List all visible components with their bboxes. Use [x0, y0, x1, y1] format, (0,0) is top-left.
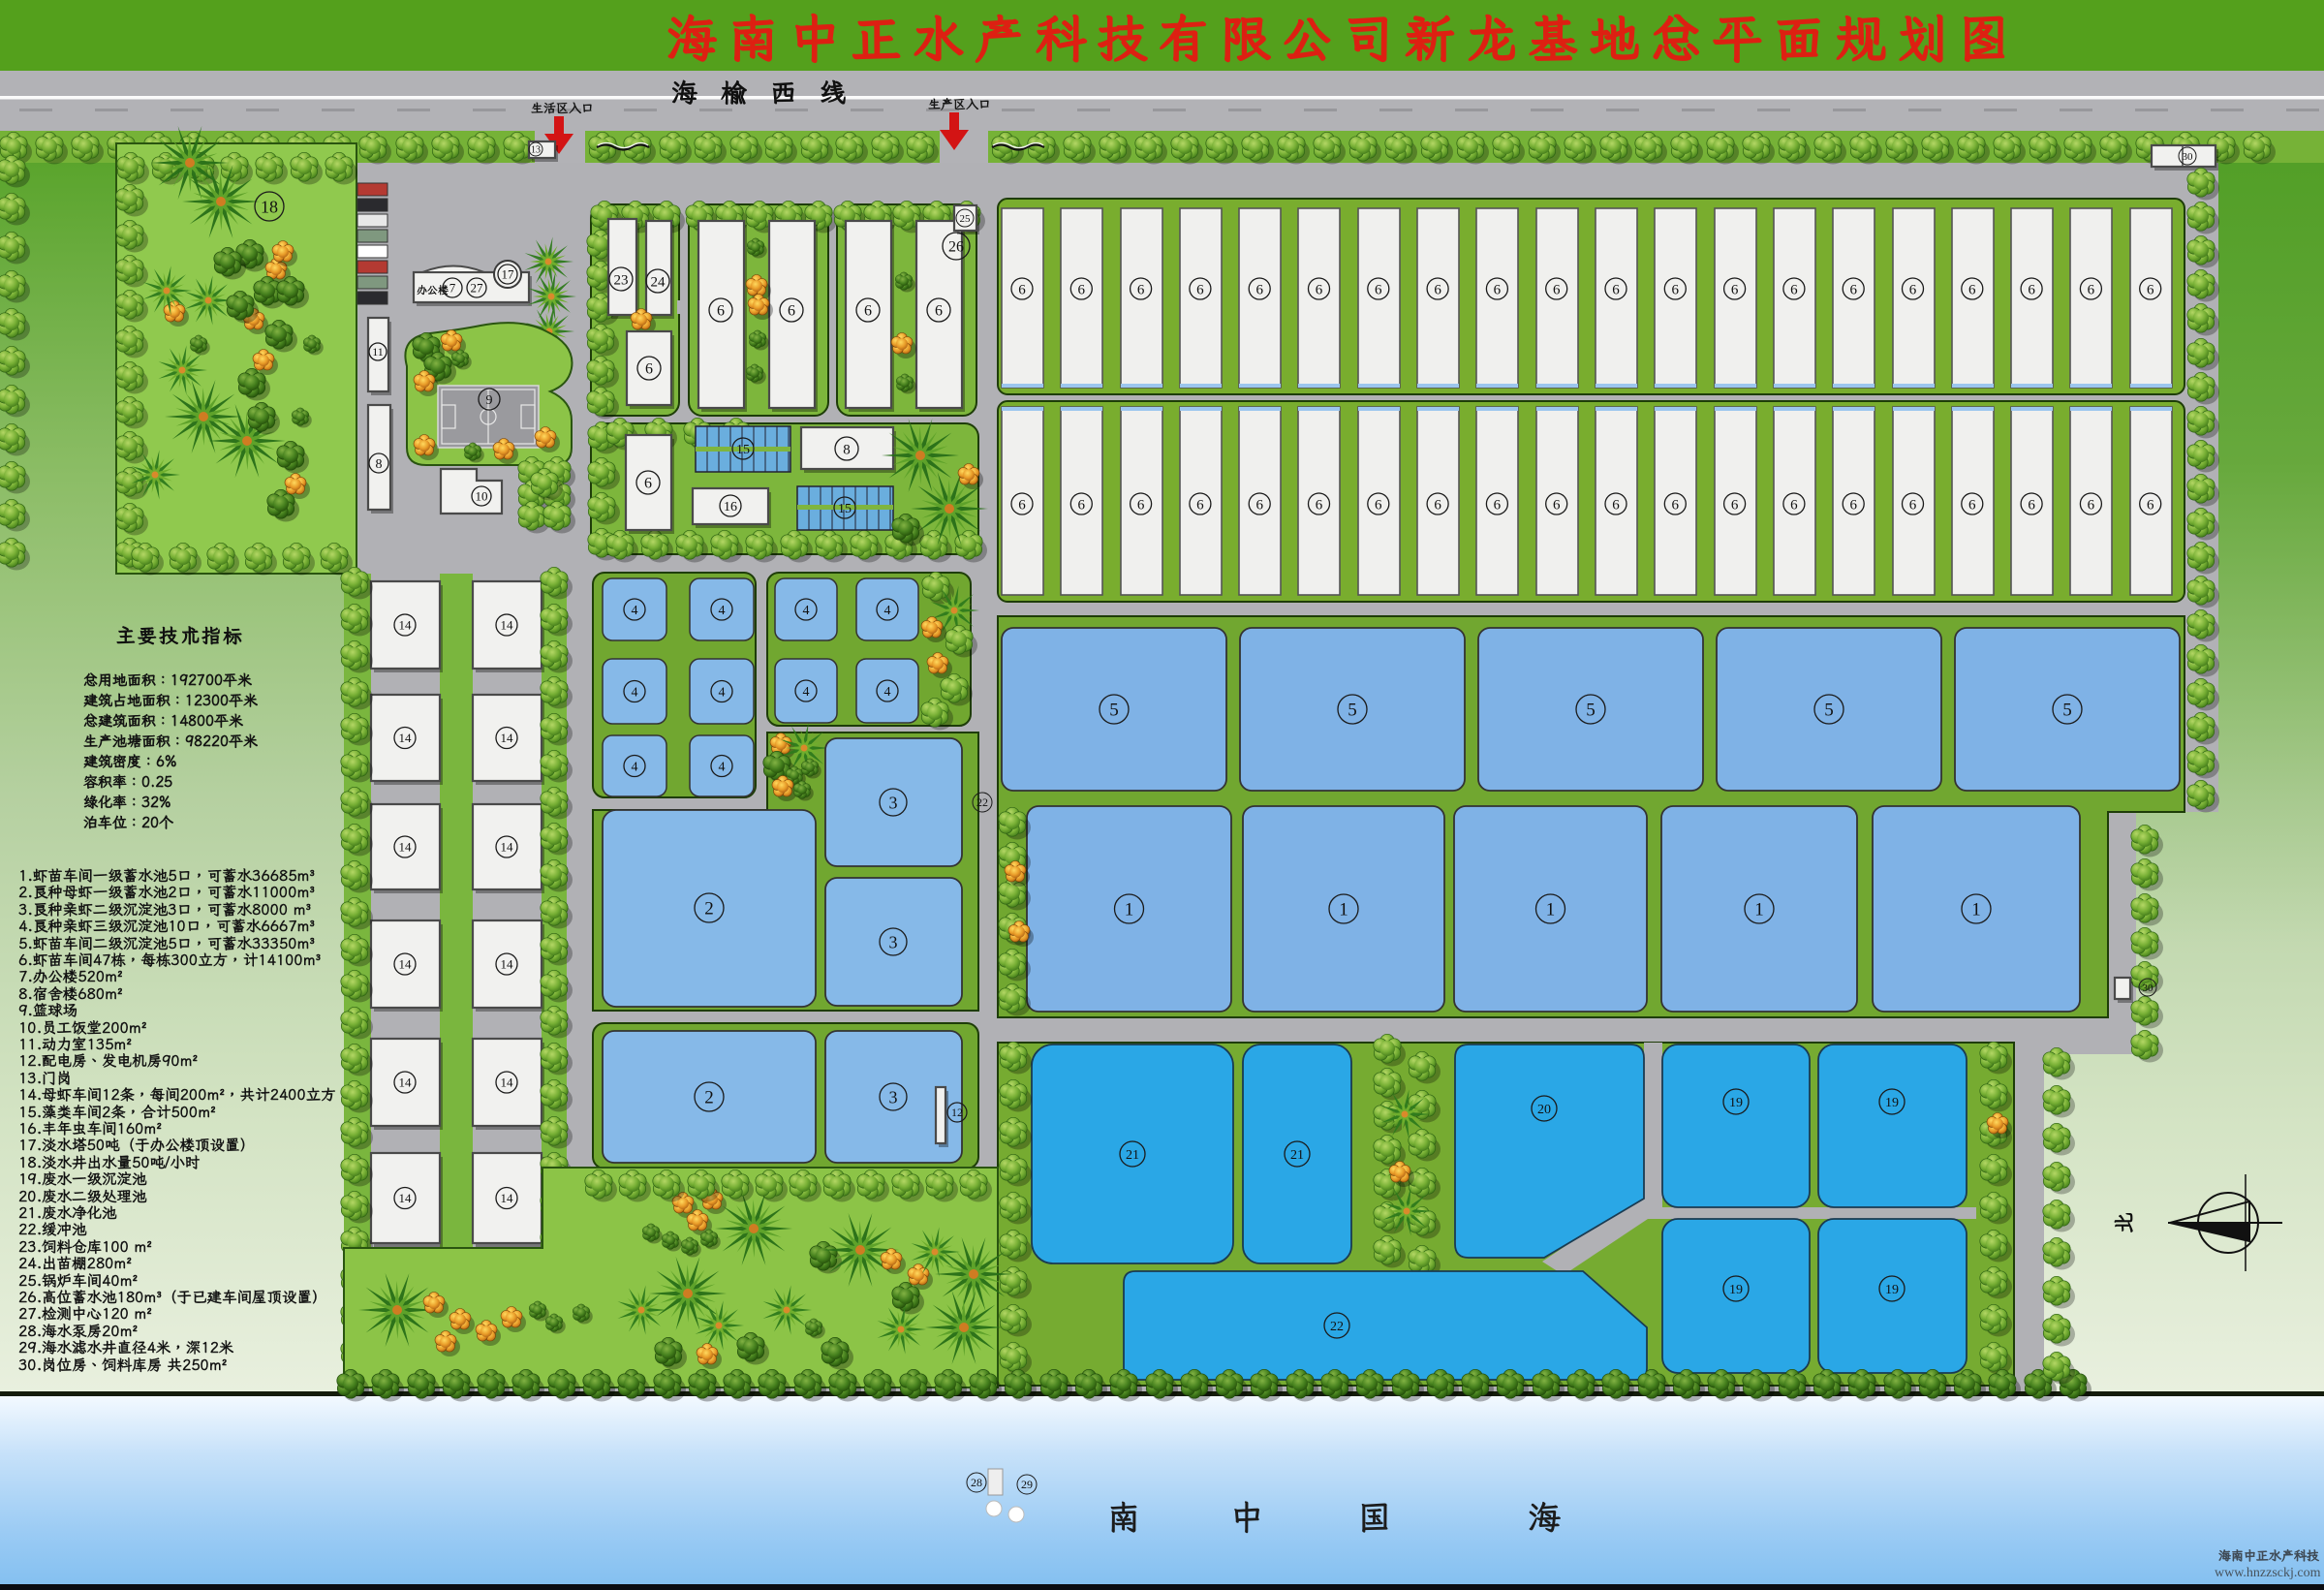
svg-text:24: 24	[651, 274, 666, 290]
svg-text:30: 30	[2143, 982, 2154, 994]
svg-text:18: 18	[261, 197, 278, 216]
svg-text:15: 15	[838, 502, 852, 516]
svg-text:24.出苗棚280m²: 24.出苗棚280m²	[18, 1254, 132, 1273]
svg-text:29.海水滤水井直径4米，深12米: 29.海水滤水井直径4米，深12米	[18, 1338, 234, 1357]
svg-text:6: 6	[1968, 282, 1976, 297]
svg-text:6: 6	[1790, 282, 1798, 297]
svg-text:19: 19	[1729, 1283, 1743, 1297]
svg-text:6: 6	[1494, 282, 1502, 297]
svg-text:建筑密度：6%: 建筑密度：6%	[83, 753, 176, 771]
svg-text:6: 6	[1790, 497, 1798, 513]
svg-text:6: 6	[864, 303, 872, 320]
svg-text:6: 6	[1553, 497, 1561, 513]
svg-text:14: 14	[501, 618, 514, 633]
svg-text:5: 5	[1586, 701, 1596, 721]
svg-text:25: 25	[960, 213, 972, 225]
svg-text:6: 6	[1672, 497, 1680, 513]
svg-text:6: 6	[1731, 282, 1739, 297]
svg-text:1: 1	[1125, 900, 1134, 920]
svg-text:5: 5	[1348, 701, 1357, 721]
svg-text:21: 21	[1126, 1148, 1139, 1163]
svg-text:22.缓冲池: 22.缓冲池	[18, 1220, 87, 1239]
svg-text:6: 6	[1434, 497, 1441, 513]
svg-text:19: 19	[1885, 1283, 1899, 1297]
svg-text:1: 1	[1754, 900, 1764, 920]
svg-text:23: 23	[614, 272, 629, 288]
svg-text:5: 5	[1109, 701, 1119, 721]
svg-text:16: 16	[724, 500, 737, 514]
svg-text:26: 26	[948, 239, 964, 256]
svg-text:主要技术指标: 主要技术指标	[116, 622, 244, 648]
svg-text:南: 南	[1107, 1495, 1140, 1539]
svg-text:6: 6	[1137, 282, 1145, 297]
svg-text:22: 22	[976, 795, 988, 809]
svg-text:4: 4	[719, 685, 726, 700]
svg-text:1: 1	[1971, 900, 1981, 920]
svg-text:1: 1	[1339, 900, 1348, 920]
svg-text:29: 29	[1021, 1478, 1033, 1491]
svg-text:6: 6	[1849, 497, 1857, 513]
svg-text:6: 6	[1078, 282, 1086, 297]
svg-text:3: 3	[889, 793, 898, 812]
svg-text:9: 9	[486, 393, 493, 408]
svg-text:14: 14	[501, 1191, 514, 1205]
svg-text:14: 14	[399, 840, 413, 855]
svg-text:6: 6	[1196, 282, 1204, 297]
svg-text:8: 8	[843, 442, 851, 457]
svg-text:7: 7	[449, 281, 456, 296]
svg-text:27: 27	[471, 281, 484, 296]
svg-text:6: 6	[1968, 497, 1976, 513]
svg-text:6: 6	[1316, 282, 1323, 297]
svg-text:13: 13	[531, 145, 541, 156]
svg-text:2.良种母虾一级蓄水池2口，可蓄水11000m³: 2.良种母虾一级蓄水池2口，可蓄水11000m³	[18, 883, 315, 902]
svg-text:12: 12	[951, 1106, 963, 1119]
svg-text:6: 6	[1375, 497, 1382, 513]
svg-text:12.配电房、发电机房90m²: 12.配电房、发电机房90m²	[18, 1051, 198, 1071]
svg-text:14: 14	[501, 840, 514, 855]
svg-text:9.篮球场: 9.篮球场	[18, 1001, 77, 1020]
svg-text:14: 14	[399, 1076, 413, 1090]
svg-text:14: 14	[399, 618, 413, 633]
svg-text:2: 2	[704, 1088, 714, 1108]
svg-text:6: 6	[1612, 282, 1620, 297]
svg-text:6: 6	[1731, 497, 1739, 513]
svg-text:生产池塘面积：98220平米: 生产池塘面积：98220平米	[83, 733, 258, 751]
svg-text:容积率：0.25: 容积率：0.25	[83, 773, 172, 792]
svg-text:海: 海	[1528, 1495, 1561, 1539]
svg-text:17.淡水塔50吨（于办公楼顶设置）: 17.淡水塔50吨（于办公楼顶设置）	[18, 1136, 255, 1155]
svg-text:6: 6	[2088, 497, 2095, 513]
svg-text:27.检测中心120 m²: 27.检测中心120 m²	[18, 1304, 152, 1324]
svg-text:17: 17	[502, 267, 515, 282]
svg-text:14: 14	[399, 957, 413, 972]
svg-text:6: 6	[1375, 282, 1382, 297]
svg-text:19.废水一级沉淀池: 19.废水一级沉淀池	[18, 1169, 147, 1189]
svg-text:6: 6	[1255, 282, 1263, 297]
svg-text:6: 6	[2028, 282, 2035, 297]
svg-text:3: 3	[889, 932, 898, 951]
svg-text:4: 4	[884, 604, 891, 618]
svg-text:4: 4	[632, 760, 638, 774]
svg-text:14: 14	[501, 1076, 514, 1090]
svg-text:建筑占地面积：12300平米: 建筑占地面积：12300平米	[83, 692, 258, 710]
svg-text:4: 4	[884, 685, 891, 700]
svg-text:4: 4	[719, 760, 726, 774]
svg-text:北: 北	[2110, 1212, 2138, 1233]
svg-text:总建筑面积：14800平米: 总建筑面积：14800平米	[83, 712, 243, 731]
svg-text:国: 国	[1358, 1495, 1391, 1539]
svg-text:6: 6	[1849, 282, 1857, 297]
svg-text:4: 4	[719, 604, 726, 618]
svg-text:30: 30	[2183, 151, 2194, 163]
svg-text:6: 6	[1196, 497, 1204, 513]
svg-text:11: 11	[372, 345, 384, 359]
svg-text:泊车位：20个: 泊车位：20个	[83, 814, 173, 832]
svg-text:6: 6	[788, 303, 795, 320]
svg-text:中: 中	[1230, 1495, 1263, 1539]
svg-text:15: 15	[736, 443, 750, 457]
svg-text:14: 14	[399, 731, 413, 745]
svg-text:生产区入口: 生产区入口	[928, 96, 991, 112]
svg-text:6: 6	[1909, 282, 1917, 297]
svg-text:6: 6	[1612, 497, 1620, 513]
svg-text:总用地面积：192700平米: 总用地面积：192700平米	[83, 671, 252, 690]
svg-text:22: 22	[1330, 1320, 1344, 1334]
svg-text:6: 6	[1672, 282, 1680, 297]
svg-text:6: 6	[1137, 497, 1145, 513]
svg-text:14.母虾车间12条，每间200m²，共计2400立方: 14.母虾车间12条，每间200m²，共计2400立方	[18, 1085, 336, 1105]
svg-text:6: 6	[1078, 497, 1086, 513]
svg-text:14: 14	[501, 957, 514, 972]
svg-text:6: 6	[1018, 282, 1026, 297]
svg-text:7.办公楼520m²: 7.办公楼520m²	[18, 967, 123, 986]
svg-text:6: 6	[2028, 497, 2035, 513]
svg-text:5: 5	[1824, 701, 1834, 721]
svg-text:6: 6	[2088, 282, 2095, 297]
svg-text:19: 19	[1885, 1096, 1899, 1110]
svg-text:6: 6	[1494, 497, 1502, 513]
svg-text:6: 6	[645, 361, 653, 378]
svg-text:6: 6	[644, 476, 652, 492]
svg-text:14: 14	[399, 1191, 413, 1205]
svg-text:生活区入口: 生活区入口	[531, 100, 594, 116]
svg-text:6: 6	[935, 303, 943, 320]
svg-text:5: 5	[2062, 701, 2072, 721]
svg-text:1: 1	[1546, 900, 1556, 920]
svg-text:6: 6	[1316, 497, 1323, 513]
svg-text:海南中正水产科技有限公司新龙基地总平面规划图: 海南中正水产科技有限公司新龙基地总平面规划图	[666, 4, 2020, 71]
svg-text:海榆西线: 海榆西线	[671, 75, 869, 109]
svg-text:19: 19	[1729, 1096, 1743, 1110]
svg-text:3: 3	[889, 1087, 898, 1107]
svg-text:6: 6	[1553, 282, 1561, 297]
svg-text:6: 6	[2147, 282, 2154, 297]
svg-text:4: 4	[803, 604, 810, 618]
svg-text:28: 28	[971, 1476, 982, 1489]
svg-text:4: 4	[632, 685, 638, 700]
svg-text:6: 6	[1255, 497, 1263, 513]
svg-text:30.岗位房、饲料库房 共250m²: 30.岗位房、饲料库房 共250m²	[18, 1356, 227, 1375]
svg-text:www.hnzzsckj.com: www.hnzzsckj.com	[2215, 1566, 2321, 1580]
svg-text:绿化率：32%: 绿化率：32%	[83, 794, 170, 812]
svg-text:6: 6	[717, 303, 725, 320]
svg-text:20: 20	[1537, 1103, 1551, 1117]
svg-text:4.良种亲虾三级沉淀池10口，可蓄水6667m³: 4.良种亲虾三级沉淀池10口，可蓄水6667m³	[18, 917, 315, 936]
svg-text:海南中正水产科技: 海南中正水产科技	[2218, 1547, 2319, 1564]
svg-text:6: 6	[1434, 282, 1441, 297]
svg-text:2: 2	[704, 899, 714, 920]
svg-text:6: 6	[1018, 497, 1026, 513]
svg-text:6: 6	[1909, 497, 1917, 513]
svg-text:4: 4	[632, 604, 638, 618]
svg-text:21: 21	[1290, 1148, 1304, 1163]
svg-text:4: 4	[803, 685, 810, 700]
svg-text:14: 14	[501, 731, 514, 745]
svg-text:6: 6	[2147, 497, 2154, 513]
svg-text:8: 8	[376, 457, 383, 472]
svg-text:10: 10	[476, 489, 488, 504]
